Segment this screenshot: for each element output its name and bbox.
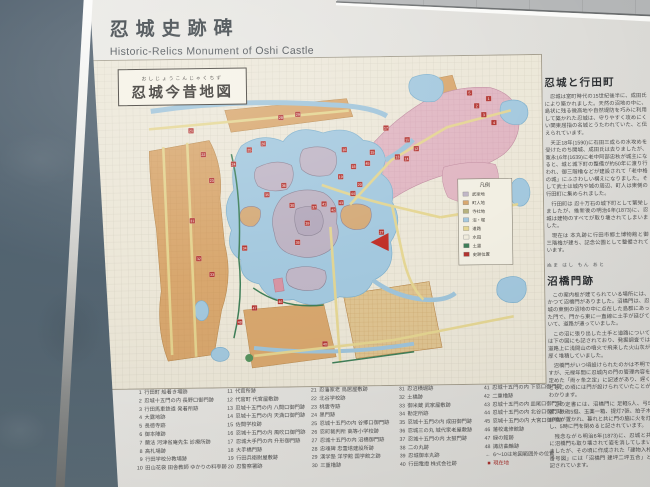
legend-chip: [463, 201, 469, 205]
site-marker-number: 28: [279, 116, 283, 120]
site-marker-number: 15: [370, 151, 374, 155]
site-item-label: 大露地跡: [144, 413, 165, 422]
site-list-item: 10田山花袋 田舎教師 ゆかりの料亭跡: [134, 463, 225, 473]
site-list-column: 11代官所跡12代官町 代官屋敷跡13忍城十五門の内 八間口御門跡14忍城十五門…: [224, 386, 309, 471]
site-item-number: 12: [224, 396, 233, 405]
site-list-item: 30三重櫓跡: [309, 461, 397, 471]
site-item-number: 38: [396, 444, 405, 453]
site-marker-number: 32: [197, 257, 201, 261]
site-item-number: 35: [396, 418, 405, 427]
legend-label: 町人地: [472, 199, 486, 205]
site-marker-number: 43: [339, 201, 343, 205]
site-list-item: 17忍城大手門の内 升形御門跡: [224, 437, 308, 447]
site-marker-number: 39: [305, 222, 309, 226]
site-list-columns: 1行田町 船着き場跡2忍城十五門の内 長野口御門跡3行田馬車鉄道 発着所跡4大露…: [133, 383, 566, 473]
site-item-number: 13: [224, 404, 233, 413]
site-marker-number: 20: [358, 183, 362, 187]
site-marker-number: 31: [190, 219, 194, 223]
site-item-label: 御米蔵 武家屋敷跡: [407, 401, 451, 410]
site-item-label: 行田馬車鉄道 発着所跡: [144, 405, 198, 414]
site-marker-number: 12: [414, 147, 418, 151]
section-paragraph: 行田町は 忍十万石の城下町として繁栄しましたが、維新後の明治6年(1873)に、…: [546, 199, 648, 230]
site-marker-number: 3: [483, 113, 485, 117]
site-marker-number: 29: [296, 113, 300, 117]
site-marker-number: 1: [488, 97, 490, 101]
photo-of-signboard: 忍城史跡碑 Historic-Relics Monument of Oshi C…: [0, 0, 650, 487]
legend-chip: [464, 252, 470, 256]
site-item-number: 39: [397, 452, 406, 461]
site-marker-number: 5: [468, 91, 470, 95]
site-item-number: 26: [308, 428, 317, 437]
site-item-label: 土橋跡: [407, 393, 423, 402]
site-item-label: 行田兵衛尉屋敷跡: [236, 454, 278, 463]
site-marker-number: 22: [201, 153, 205, 157]
map-legend-box: 凡例 武家地町人地寺社地沼・堀道路水田土塁史跡位置: [458, 178, 513, 265]
site-item-number: 47: [481, 434, 490, 443]
site-list-item: 41忍城十五門の内 下忍口御門跡: [481, 383, 561, 393]
site-marker-number: 45: [365, 162, 369, 166]
site-item-number: 36: [396, 427, 405, 436]
site-item-label: 御本陣跡: [145, 430, 166, 439]
site-marker-number: 17: [384, 126, 388, 130]
site-item-number: 17: [224, 438, 233, 447]
site-item-number: 19: [225, 454, 234, 463]
section-paragraph: 天正18年(1590)に石田三成らの水攻めを受けたのち開城、成田氏は去りましたが…: [545, 138, 648, 198]
site-item-number: 9: [134, 456, 143, 465]
site-item-label: 田山花袋 田舎教師 ゆかりの料亭跡: [145, 463, 227, 473]
site-list-item: 14忍城十五門の内 天満口御門跡: [224, 411, 308, 421]
site-item-label: 漢学塾 洋学館 国学館之跡: [320, 452, 381, 461]
site-marker-number: 34: [243, 246, 247, 250]
site-item-label: 忍城十五門の内 太鼓門跡: [408, 434, 467, 443]
site-number-list: 1行田町 船着き場跡2忍城十五門の内 長野口御門跡3行田馬車鉄道 発着所跡4大露…: [133, 383, 566, 487]
section-heading: 忍城と行田町: [544, 73, 646, 89]
site-item-number: 11: [224, 387, 233, 396]
site-item-number: 41: [481, 384, 490, 393]
site-item-number: 7: [133, 439, 142, 448]
site-item-label: 二の丸跡: [408, 443, 429, 452]
pink-block: [273, 278, 284, 292]
legend-chip: [464, 235, 470, 239]
site-item-number: 2: [133, 397, 142, 406]
site-item-number: 14: [224, 412, 233, 421]
site-item-label: 蘭法 河津省庵先生 診療所跡: [145, 438, 211, 447]
site-item-number: 43: [481, 400, 490, 409]
map-legend-title: 凡例: [480, 181, 491, 189]
site-item-number: 28: [308, 445, 317, 454]
site-item-number: 18: [224, 446, 233, 455]
site-list-column: 41忍城十五門の内 下忍口御門跡42二重櫓跡43忍城十五門の内 皿尾口御門跡44…: [481, 383, 562, 468]
site-item-number: 45: [481, 417, 490, 426]
site-list-item: 7蘭法 河津省庵先生 診療所跡: [133, 438, 224, 448]
site-item-number: 3: [133, 405, 142, 414]
site-item-number: 24: [308, 411, 317, 420]
section-paragraph: 忍城は室町時代の15世紀後半に、成田氏により築かれました。天然の沼地の中に、島状…: [545, 92, 648, 137]
map-title: 忍城今昔地図: [131, 82, 233, 101]
site-item-number: 4: [133, 414, 142, 423]
site-marker-number: 41: [322, 202, 326, 206]
site-item-number: 5: [133, 422, 142, 431]
site-marker-number: 46: [278, 300, 282, 304]
site-marker-number: 21: [189, 129, 193, 133]
sign-title: 忍城史跡碑: [109, 12, 313, 42]
site-list-item: ←6〜10は地図範囲外の位置: [482, 450, 562, 460]
legend-chip: [464, 244, 470, 248]
site-item-number: ←: [482, 451, 491, 460]
site-marker-number: 37: [312, 205, 316, 209]
site-item-number: 10: [134, 464, 143, 473]
site-item-number: 15: [224, 421, 233, 430]
site-marker-number: 44: [351, 192, 355, 196]
site-item-label: 桃雲寺跡: [319, 403, 340, 412]
site-list-column: 31忍沼横堀跡32土橋跡33御米蔵 武家屋敷跡34勘定所跡35忍城十五門の内 成…: [396, 384, 482, 469]
site-item-label: 忍藩家老 鳥居屋敷跡: [319, 385, 368, 394]
site-item-number: 16: [224, 429, 233, 438]
site-marker-number: 11: [405, 138, 409, 142]
site-item-number: 25: [308, 420, 317, 429]
site-item-label: 高札場跡: [145, 447, 166, 456]
site-item-number: 6: [133, 430, 142, 439]
site-item-number: 32: [396, 393, 405, 402]
site-item-number: 42: [481, 392, 490, 401]
site-item-number: 21: [308, 386, 317, 395]
site-item-label: 藩校進修館跡: [493, 425, 525, 434]
site-marker-number: 19: [339, 175, 343, 179]
site-item-number: 46: [481, 426, 490, 435]
site-marker-number: 47: [252, 306, 256, 310]
site-item-number: 30: [309, 462, 318, 471]
site-marker-number: 35: [265, 193, 269, 197]
site-item-number: 31: [396, 385, 405, 394]
historical-map-panel: おしじょうこんじゃくちず 忍城今昔地図 凡例 武家地町人地寺社地沼・堀道路水田土…: [90, 54, 547, 390]
site-marker-number: 23: [210, 179, 214, 183]
site-list-item: ■現在地: [482, 458, 562, 468]
site-item-number: 44: [481, 409, 490, 418]
site-marker-number: 16: [342, 148, 346, 152]
section-paragraph: この案内板が建てられている場所には、かつて沼橋門がありました。沼橋門は、忍城の東…: [547, 290, 650, 328]
section-furigana: ぬま はし もん あと: [547, 260, 649, 268]
legend-label: 武家地: [472, 191, 486, 197]
site-item-label: 忍城十五門の内 天満口御門跡: [235, 411, 305, 420]
site-list-column: 21忍藩家老 鳥居屋敷跡22北谷学校跡23桃雲寺跡24黒門跡25忍城十五門の内 …: [308, 385, 397, 470]
site-item-label: 緑の館跡: [493, 434, 514, 443]
site-item-label: 忍城大手門の内 升形御門跡: [236, 437, 301, 446]
site-item-number: 23: [308, 403, 317, 412]
site-marker-number: 26: [261, 142, 265, 146]
site-marker-number: 13: [395, 155, 399, 159]
site-marker-number: 27: [379, 231, 383, 235]
site-marker-number: 40: [323, 342, 327, 346]
legend-chip: [463, 192, 469, 196]
site-item-label: 現在地: [493, 459, 509, 468]
historical-map: おしじょうこんじゃくちず 忍城今昔地図 凡例 武家地町人地寺社地沼・堀道路水田土…: [90, 54, 547, 390]
site-item-label: 諏訪曲輪跡: [493, 442, 519, 451]
site-item-number: 29: [309, 453, 318, 462]
legend-chip: [463, 226, 469, 230]
site-list-column: 1行田町 船着き場跡2忍城十五門の内 長野口御門跡3行田馬車鉄道 発着所跡4大露…: [133, 387, 225, 472]
sign-title-block: 忍城史跡碑 Historic-Relics Monument of Oshi C…: [109, 12, 314, 58]
site-marker-number: 4: [493, 121, 495, 125]
site-item-label: 忍沼横堀跡: [407, 384, 433, 393]
site-marker-number: 36: [282, 184, 286, 188]
site-item-label: 代官所跡: [235, 387, 256, 396]
section-paragraph: この沼に張り出した土手と道路については下の図にも記されており、発掘調査では道路上…: [548, 329, 650, 360]
site-item-number: 1: [133, 389, 142, 398]
site-item-label: 北谷学校跡: [319, 394, 345, 403]
section-heading: 沼橋門跡: [547, 272, 649, 288]
site-marker-number: 24: [231, 163, 235, 167]
site-item-label: 行田電燈 株式会社跡: [408, 460, 457, 469]
site-item-label: 勘定所跡: [407, 410, 428, 419]
site-list-item: 40行田電燈 株式会社跡: [397, 459, 482, 469]
site-item-number: 8: [133, 447, 142, 456]
site-item-number: 20: [225, 463, 234, 472]
site-item-number: 48: [481, 442, 490, 451]
sign-subtitle: Historic-Relics Monument of Oshi Castle: [110, 45, 314, 58]
site-marker-number: 33: [210, 273, 214, 277]
site-marker-number: 18: [352, 165, 356, 169]
site-item-label: 長徳寺跡: [145, 422, 166, 431]
legend-chip: [463, 218, 469, 222]
site-marker-number: 38: [296, 241, 300, 245]
site-item-label: 忍城十五門の内 大宮口御門跡: [493, 416, 563, 425]
site-item-number: 40: [397, 460, 406, 469]
site-item-number: 22: [308, 394, 317, 403]
site-item-number: 27: [308, 436, 317, 445]
site-marker-number: 25: [247, 148, 251, 152]
site-marker-number: 14: [404, 157, 408, 161]
map-cartouche: おしじょうこんじゃくちず 忍城今昔地図: [118, 68, 246, 106]
site-marker-number: 30: [290, 204, 294, 208]
site-item-number: 33: [396, 402, 405, 411]
legend-label: 土塁: [473, 242, 482, 248]
site-item-number: 37: [396, 435, 405, 444]
site-item-label: 三重櫓跡: [320, 461, 341, 470]
site-item-label: 忍城十五門の内 下忍口御門跡: [492, 383, 562, 392]
site-item-number: ■: [482, 459, 491, 468]
site-item-label: 忍警察署跡: [236, 462, 262, 471]
site-item-label: 黒門跡: [319, 411, 335, 420]
site-item-label: 二重櫓跡: [492, 392, 513, 401]
site-list-item: 20忍警察署跡: [225, 462, 309, 472]
site-item-number: 34: [396, 410, 405, 419]
site-marker-number: 2: [476, 104, 478, 108]
section-paragraph: 現在は 本丸跡に行田市郷土博物館と御三階櫓が建ち、記念公園として整備されています…: [546, 231, 648, 254]
site-marker-number: 42: [331, 208, 335, 212]
legend-chip: [463, 209, 469, 213]
site-item-label: 6〜10は地図範囲外の位置: [493, 450, 554, 459]
site-marker-number: 48: [238, 321, 242, 325]
